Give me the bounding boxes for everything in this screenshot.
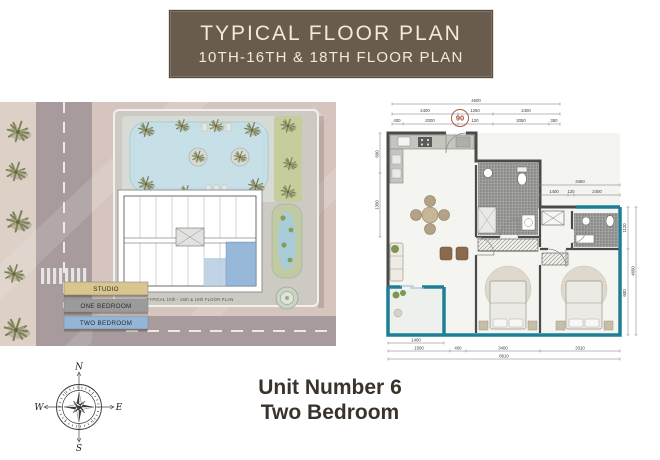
dim-label: 2000 [425,118,435,123]
legend-label-studio: STUDIO [93,286,119,293]
dim-label: 1400 [549,189,559,194]
page-title: TYPICAL FLOOR PLAN [200,22,462,46]
dim-label: 2400 [521,108,531,113]
unit-floor-plan: 06 4600 2400 1250 2400 400 2000 120 2050… [372,97,657,363]
shaft [542,211,564,225]
dim-label: 8610 [499,354,509,359]
plant-icon [391,245,399,253]
legend-label-two-bedroom: TWO BEDROOM [80,320,132,327]
site-plan-caption: TYPICAL 10th - 16th & 18th FLOOR PLAN [147,297,234,302]
dim-label: 1400 [411,338,421,343]
dim-label: 4650 [631,266,636,276]
dim-label: 1500 [414,346,424,351]
dim-label: 1120 [622,223,627,233]
compass-south-label: S [76,444,82,453]
dim-label: 120 [471,118,479,123]
compass-west-label: W [34,403,44,413]
dim-label: 3400 [498,346,508,351]
sink-1 [484,169,493,178]
dim-label: 2400 [592,189,602,194]
unit-number-text: Unit Number 6 [150,375,510,400]
dim-label: 600 [375,150,380,158]
kitchen-sink [398,137,410,146]
unit-type-text: Two Bedroom [150,400,510,425]
dim-label: 350 [550,118,558,123]
unit-badge-number: 06 [456,113,464,122]
fridge [456,137,470,147]
compass-icon: N E S W [33,361,125,453]
dim-label: 400 [393,118,401,123]
highlight-unit-light [204,258,226,286]
unit-caption: Unit Number 6 Two Bedroom [150,375,510,425]
dim-label: 2050 [516,118,526,123]
legend: STUDIO ONE BEDROOM TWO BEDROOM [64,282,148,332]
dim-label: 600 [622,289,627,297]
page: TYPICAL FLOOR PLAN 10TH-16TH & 18TH FLOO… [0,0,660,460]
sink-2 [582,217,590,225]
pond [278,212,296,270]
dim-label: 2400 [420,108,430,113]
dim-label: 120 [567,189,575,194]
dim-label: 400 [454,346,462,351]
fountain [276,287,298,309]
legend-label-one-bedroom: ONE BEDROOM [80,303,131,310]
title-banner: TYPICAL FLOOR PLAN 10TH-16TH & 18TH FLOO… [169,10,493,78]
page-subtitle: 10TH-16TH & 18TH FLOOR PLAN [199,49,464,66]
dim-label: 1350 [375,200,380,210]
compass-north-label: N [74,363,84,373]
highlight-unit-6 [226,242,256,286]
compass-east-label: E [115,403,123,413]
dim-label: 4600 [471,98,481,103]
dim-label: 3460 [575,179,585,184]
stove [418,137,432,147]
toilet-2 [606,216,614,227]
toilet-1 [518,173,527,185]
dim-label: 3310 [575,346,585,351]
site-plan: TYPICAL 10th - 16th & 18th FLOOR PLAN ST… [0,102,336,346]
dim-label: 1250 [470,108,480,113]
